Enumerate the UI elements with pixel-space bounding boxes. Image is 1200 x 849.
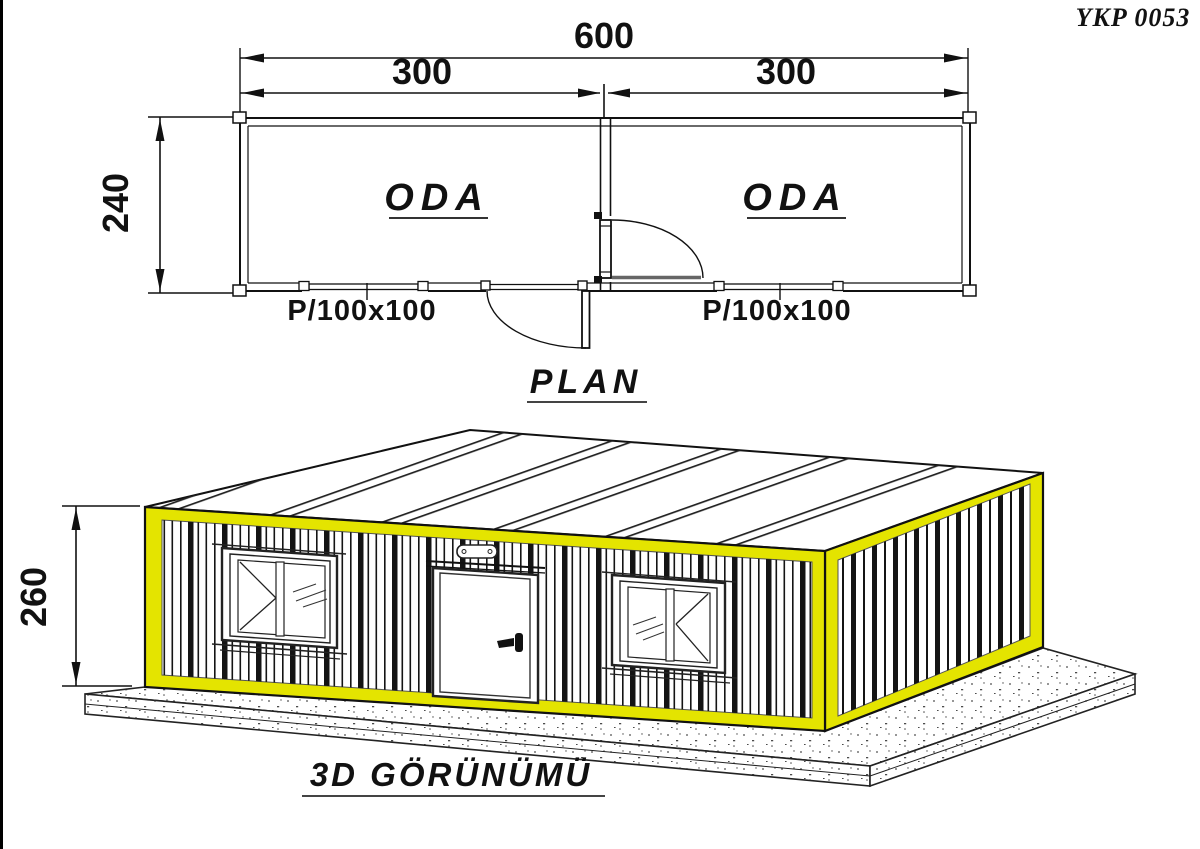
dimension-240: 240 — [95, 117, 238, 293]
view-3d-title: 3D GÖRÜNÜMÜ — [302, 756, 605, 796]
technical-drawing: YKP 0053 600 300 300 — [0, 0, 1200, 849]
room-label-right: ODA — [742, 177, 847, 219]
drawing-sheet: YKP 0053 600 300 300 — [0, 0, 1200, 849]
window-label-left: P/100x100 — [287, 295, 436, 327]
corner-post — [963, 112, 976, 123]
door-swing-arc — [612, 220, 703, 278]
window-left-3d — [212, 544, 347, 659]
room-labels: ODA ODA — [384, 177, 847, 219]
room-label-left: ODA — [384, 177, 489, 219]
view-3d: 260 — [13, 430, 1135, 796]
window-right-3d — [602, 572, 737, 683]
door-vent — [457, 545, 497, 558]
corner-post — [963, 285, 976, 296]
plan-title: PLAN — [527, 363, 647, 402]
window-label-right: P/100x100 — [702, 295, 851, 327]
plan-door-middle — [594, 212, 703, 283]
svg-text:PLAN: PLAN — [530, 363, 643, 401]
page-left-border — [0, 0, 3, 849]
dim-240-text: 240 — [95, 173, 136, 233]
dimension-260: 260 — [13, 506, 140, 686]
dim-300-left-text: 300 — [392, 51, 452, 92]
dim-600-text: 600 — [574, 15, 634, 56]
floor-plan: 600 300 300 240 — [95, 15, 976, 402]
dim-300-right-text: 300 — [756, 51, 816, 92]
dim-260-text: 260 — [13, 567, 54, 627]
svg-text:3D GÖRÜNÜMÜ: 3D GÖRÜNÜMÜ — [310, 756, 592, 793]
door-swing-arc — [487, 291, 586, 348]
drawing-number: YKP 0053 — [1076, 3, 1191, 32]
door-leaf — [582, 291, 590, 348]
corner-post — [233, 285, 246, 296]
dimension-300-right: 300 — [604, 51, 968, 117]
plan-door-left — [481, 280, 590, 348]
door-leaf — [600, 220, 611, 278]
corner-post — [233, 112, 246, 123]
